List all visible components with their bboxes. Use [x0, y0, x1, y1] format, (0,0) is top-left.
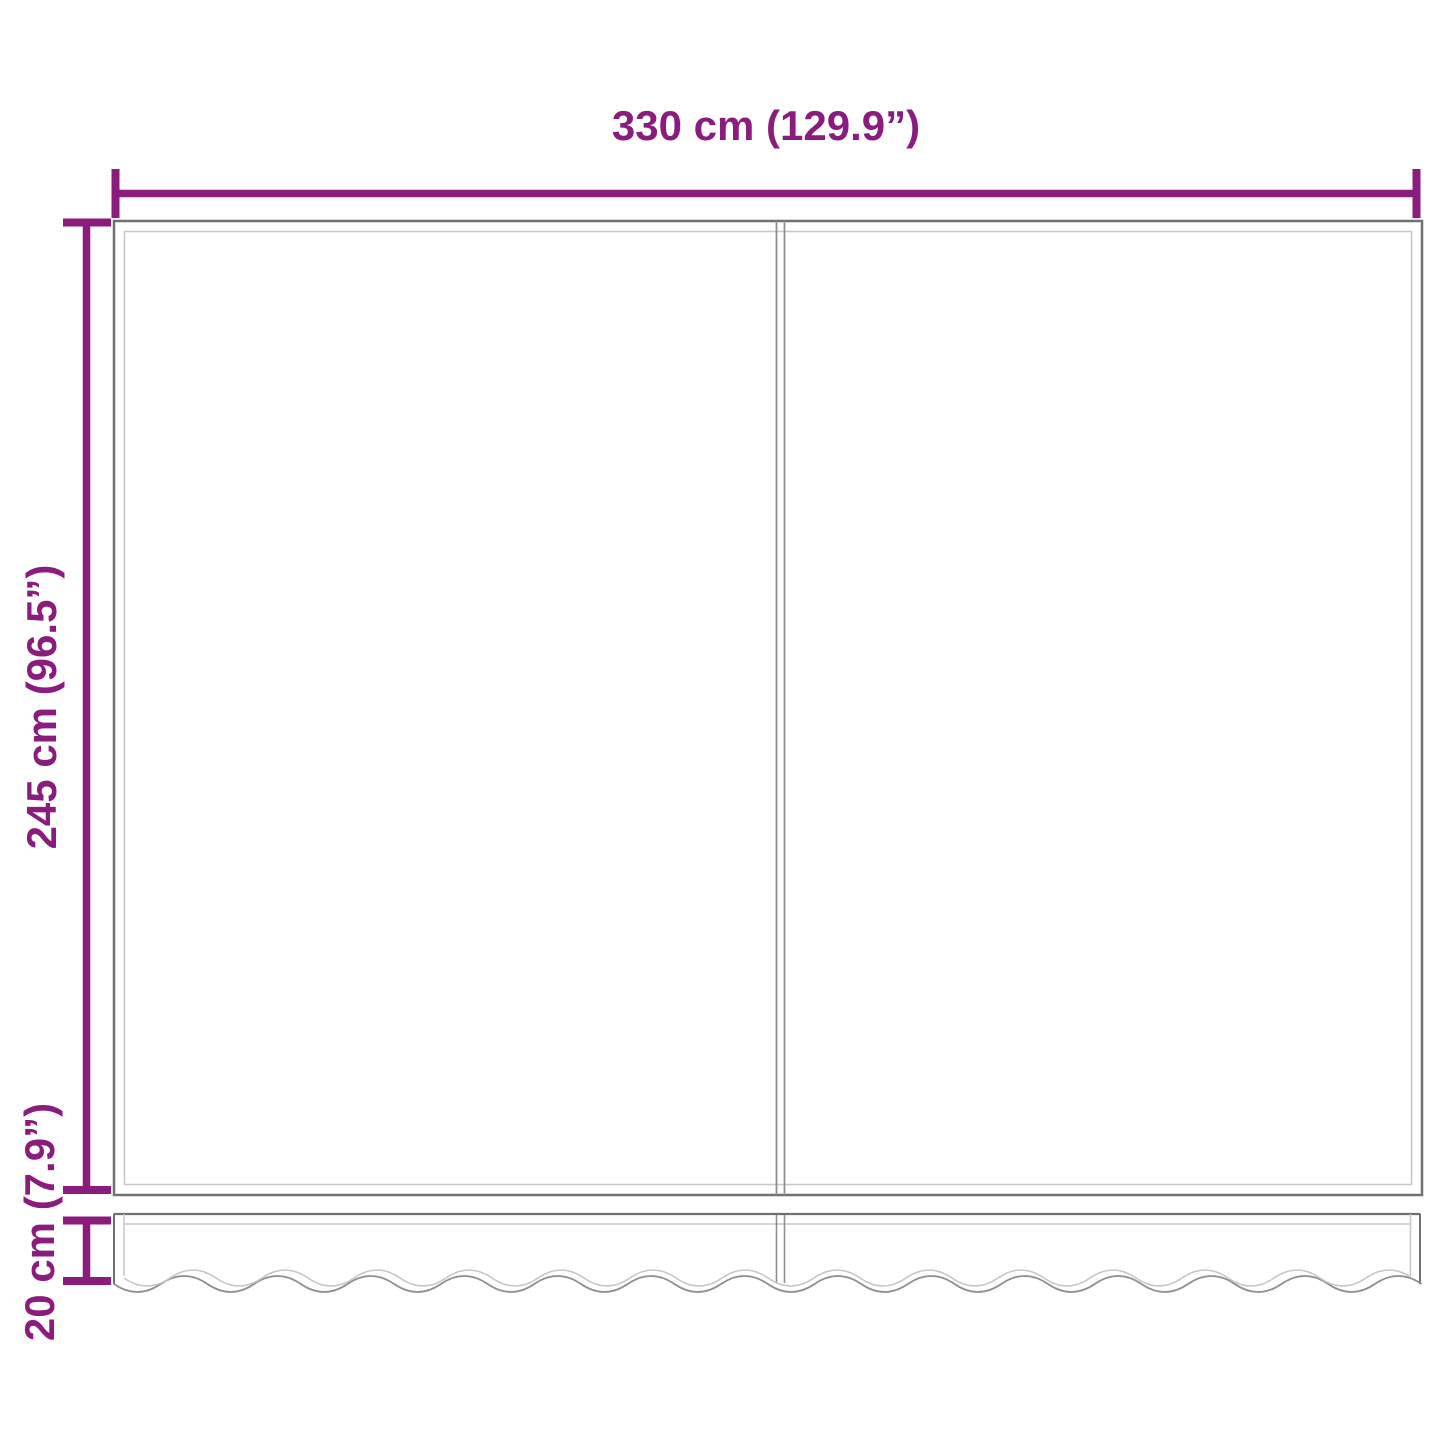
- fabric-panel: [114, 221, 1422, 1195]
- valance: [114, 1214, 1422, 1292]
- dimension-diagram: 330 cm (129.9”) 245 cm (96.5”) 20 cm (7.…: [0, 0, 1445, 1445]
- fabric-panel-inner-hem: [125, 232, 1412, 1185]
- awning-fabric-diagram: 330 cm (129.9”) 245 cm (96.5”) 20 cm (7.…: [0, 0, 1445, 1445]
- height-dimension-label: 245 cm (96.5”): [18, 565, 65, 850]
- valance-dimension: 20 cm (7.9”): [16, 1103, 111, 1341]
- valance-dimension-label: 20 cm (7.9”): [16, 1103, 63, 1341]
- width-dimension: 330 cm (129.9”): [116, 102, 1417, 218]
- fabric-panel-outline: [114, 221, 1422, 1195]
- height-dimension: 245 cm (96.5”): [18, 223, 111, 1191]
- width-dimension-label: 330 cm (129.9”): [612, 102, 920, 149]
